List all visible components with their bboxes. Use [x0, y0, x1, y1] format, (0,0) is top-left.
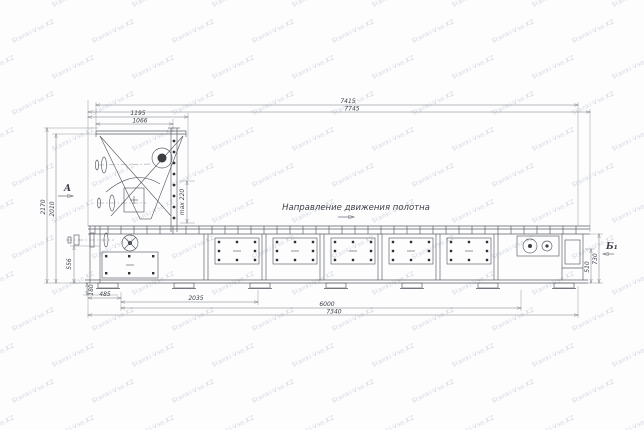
- dim-label-2010: 2010: [49, 201, 56, 216]
- dim-label-7340: 7340: [326, 309, 341, 316]
- dim-label-1066: 1066: [132, 118, 147, 125]
- section-label-b: Б₁: [605, 242, 618, 252]
- dim-label-485: 485: [99, 291, 111, 298]
- dim-label-180: 180: [88, 284, 95, 296]
- dims-top-left: 1195 1066: [88, 110, 188, 180]
- dim-label-556: 556: [66, 258, 73, 270]
- dims-right: 510 730: [584, 234, 603, 283]
- dim-label-7745: 7745: [344, 106, 359, 113]
- dim-max220: max 220: [179, 181, 195, 223]
- dim-label-510: 510: [584, 261, 591, 273]
- conveyor-table: [88, 226, 590, 280]
- dim-label-730: 730: [592, 253, 599, 265]
- panel-row: [215, 238, 491, 264]
- dim-label-2170: 2170: [40, 199, 47, 214]
- dim-label-7415: 7415: [340, 98, 355, 105]
- direction-label: Направление движения полотна: [282, 203, 430, 213]
- section-label-a: A: [63, 184, 71, 194]
- feet-row: [96, 283, 576, 289]
- dim-label-1195: 1195: [130, 110, 145, 117]
- section-a-marker: A: [58, 184, 73, 196]
- feeder-assembly: [66, 128, 186, 283]
- technical-drawing: 7415 7745 1195 1066 2170 2010 A: [0, 0, 644, 430]
- support-legs: [204, 234, 498, 280]
- drawing-page: Stanki-Vse.KZStanki-Vse.KZStanki-Vse.KZS…: [0, 0, 644, 430]
- section-b-marker: Б₁: [603, 242, 618, 254]
- dims-bottom: 485 2035 6000 7340: [88, 286, 578, 318]
- dim-label-6000: 6000: [319, 301, 334, 308]
- dim-label-2035: 2035: [188, 295, 203, 302]
- machine-base: [85, 280, 588, 289]
- right-end-assembly: [517, 234, 583, 280]
- rail-ticks: [95, 226, 576, 234]
- dim-label-max220: max 220: [179, 189, 186, 216]
- direction-note: Направление движения полотна: [282, 203, 430, 217]
